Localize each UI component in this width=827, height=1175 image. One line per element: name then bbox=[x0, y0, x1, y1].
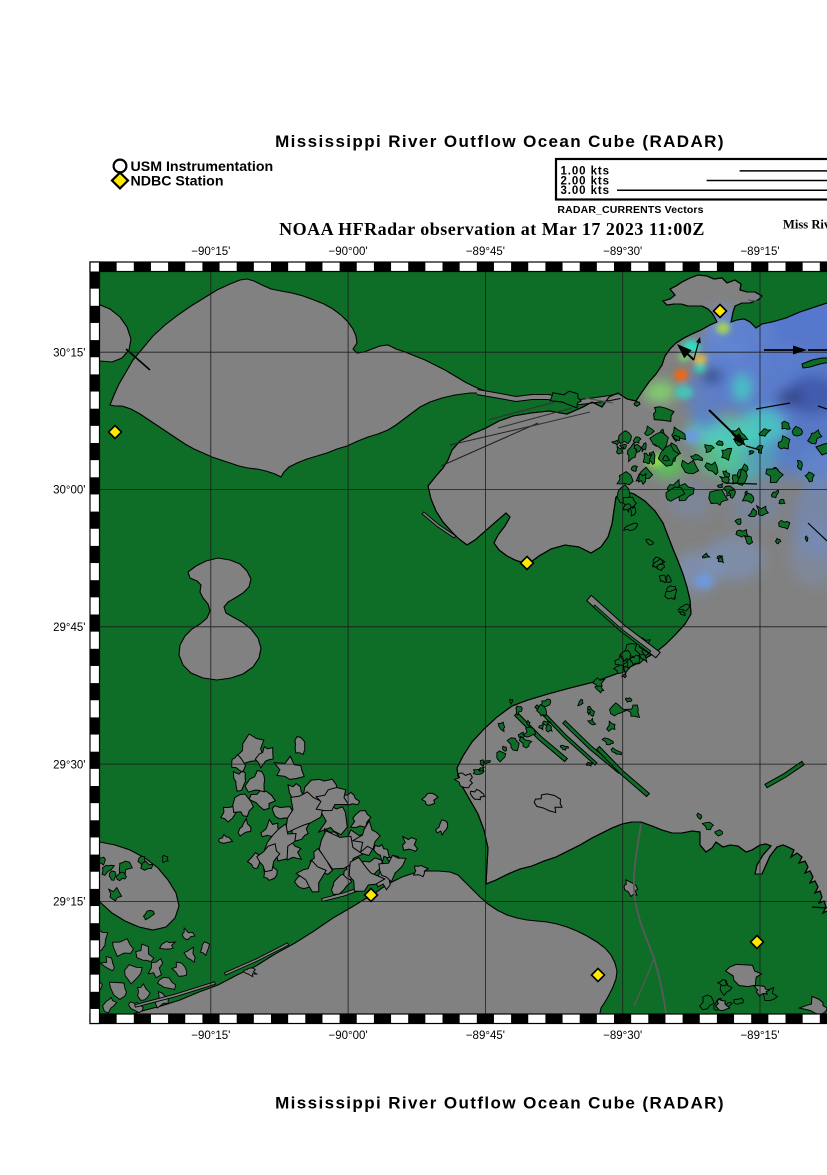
svg-text:29°15': 29°15' bbox=[53, 897, 85, 909]
svg-text:−90°00': −90°00' bbox=[329, 246, 368, 258]
svg-text:NDBC Station: NDBC Station bbox=[131, 174, 224, 190]
svg-text:NOAA HFRadar observation at Ma: NOAA HFRadar observation at Mar 17 2023 … bbox=[279, 219, 705, 239]
svg-text:−89°30': −89°30' bbox=[603, 246, 642, 258]
svg-text:Miss River Outflow: Miss River Outflow bbox=[783, 218, 827, 232]
svg-text:−90°00': −90°00' bbox=[329, 1030, 368, 1042]
svg-text:−89°15': −89°15' bbox=[740, 246, 779, 258]
svg-text:30°00': 30°00' bbox=[53, 485, 85, 497]
svg-text:29°30': 29°30' bbox=[53, 759, 85, 771]
svg-text:30°15': 30°15' bbox=[53, 347, 85, 359]
svg-text:29°45': 29°45' bbox=[53, 622, 85, 634]
svg-text:−90°15': −90°15' bbox=[191, 1030, 230, 1042]
svg-text:−90°15': −90°15' bbox=[191, 246, 230, 258]
svg-text:Mississippi River Outflow Ocea: Mississippi River Outflow Ocean Cube (RA… bbox=[275, 1094, 725, 1113]
svg-text:−89°45': −89°45' bbox=[466, 246, 505, 258]
svg-text:−89°30': −89°30' bbox=[603, 1030, 642, 1042]
svg-text:RADAR_CURRENTS Vectors: RADAR_CURRENTS Vectors bbox=[557, 204, 703, 216]
svg-text:3.00 kts: 3.00 kts bbox=[561, 185, 610, 197]
svg-text:Mississippi River Outflow Ocea: Mississippi River Outflow Ocean Cube (RA… bbox=[275, 132, 725, 151]
svg-text:−89°15': −89°15' bbox=[740, 1030, 779, 1042]
svg-text:−89°45': −89°45' bbox=[466, 1030, 505, 1042]
